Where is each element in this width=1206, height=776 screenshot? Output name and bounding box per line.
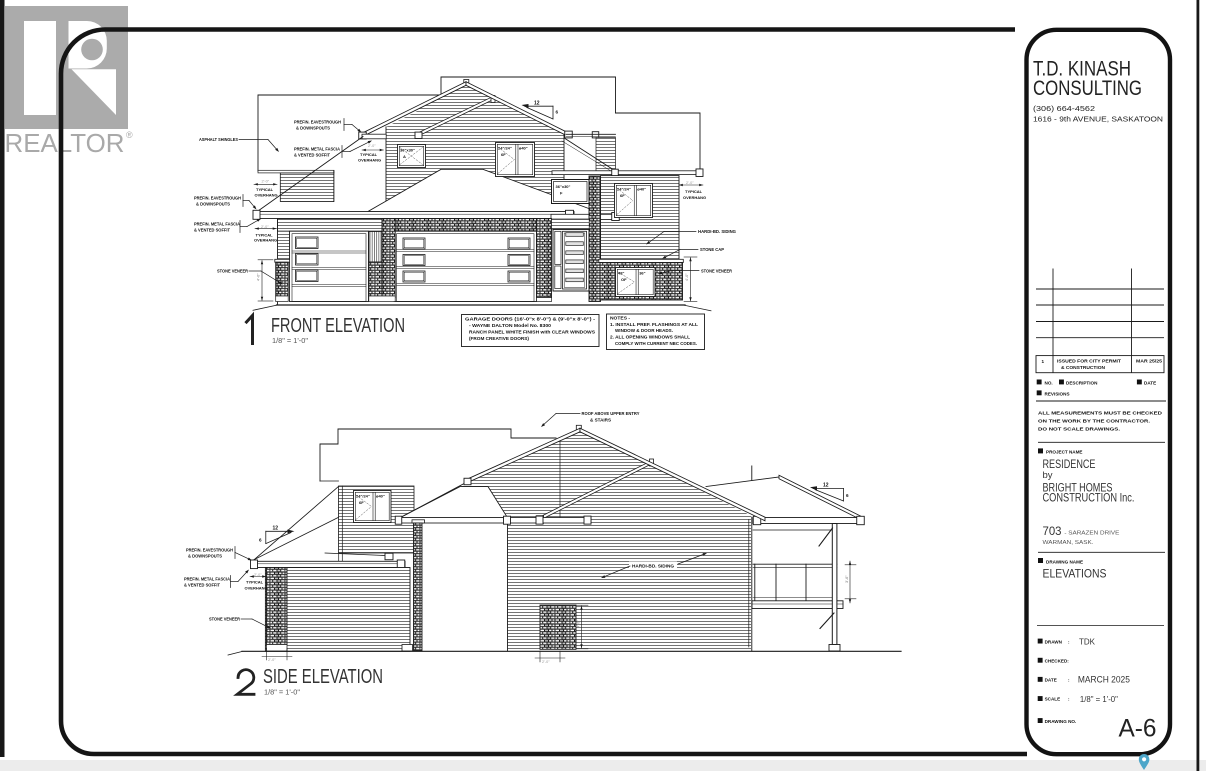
svg-text:A: A	[403, 154, 406, 159]
svg-text:& DOWNSPOUTS: & DOWNSPOUTS	[296, 126, 330, 131]
svg-text:PREFIN. EAVESTROUGH: PREFIN. EAVESTROUGH	[294, 120, 341, 125]
svg-text:STONE VENEER: STONE VENEER	[701, 269, 732, 274]
svg-text:2'-0": 2'-0"	[262, 180, 270, 184]
svg-text:MAR 25/25: MAR 25/25	[1136, 359, 1163, 364]
svg-text:PROJECT NAME: PROJECT NAME	[1046, 450, 1083, 455]
svg-text:PREFIN. METAL FASCIA: PREFIN. METAL FASCIA	[194, 222, 240, 227]
svg-text:& VENTED SOFFIT: & VENTED SOFFIT	[184, 583, 220, 588]
svg-text:TYPICAL: TYPICAL	[246, 579, 264, 584]
svg-text:ø40": ø40"	[637, 187, 646, 192]
svg-text:6F: 6F	[501, 152, 506, 157]
svg-text:ALL MEASUREMENTS MUST BE CHECK: ALL MEASUREMENTS MUST BE CHECKED	[1038, 411, 1163, 416]
svg-text:2'-0": 2'-0"	[542, 660, 550, 664]
svg-text:NO.: NO.	[1045, 381, 1053, 386]
svg-text:CONSULTING: CONSULTING	[1033, 77, 1142, 100]
svg-text:4'-0": 4'-0"	[257, 273, 261, 281]
svg-text:- WAYNE DALTON Model No. 8300: - WAYNE DALTON Model No. 8300	[469, 323, 552, 328]
svg-text:2'-0": 2'-0"	[368, 144, 376, 148]
svg-text:1/8" = 1'-0": 1/8" = 1'-0"	[1080, 695, 1118, 704]
svg-text:OVERHANG: OVERHANG	[683, 195, 706, 200]
svg-text:1: 1	[1042, 359, 1045, 364]
svg-text:6: 6	[846, 493, 849, 498]
svg-text:STONE VENEER: STONE VENEER	[209, 617, 240, 622]
svg-text:A-6: A-6	[1119, 715, 1157, 743]
svg-text:& VENTED SOFFIT: & VENTED SOFFIT	[194, 228, 230, 233]
svg-text:TYPICAL: TYPICAL	[256, 187, 274, 192]
svg-text:2. ALL OPENING WINDOWS SHALL: 2. ALL OPENING WINDOWS SHALL	[610, 335, 691, 340]
svg-text:4'-0": 4'-0"	[685, 273, 689, 281]
svg-text:PREFIN. METAL FASCIA: PREFIN. METAL FASCIA	[294, 147, 340, 152]
svg-text:12: 12	[823, 483, 829, 489]
svg-text:TDK: TDK	[1079, 638, 1096, 647]
svg-text:COMPLY WITH CURRENT NBC CODES.: COMPLY WITH CURRENT NBC CODES.	[615, 341, 697, 346]
svg-text:24"/24": 24"/24"	[498, 146, 512, 151]
svg-text:48": 48"	[618, 271, 624, 276]
svg-text:& CONSTRUCTION: & CONSTRUCTION	[1061, 365, 1105, 370]
svg-text:OVERHANG: OVERHANG	[245, 586, 268, 591]
svg-text:ø40": ø40"	[376, 494, 385, 499]
svg-text:2'-0": 2'-0"	[686, 181, 694, 185]
svg-text:PREFIN. EAVESTROUGH: PREFIN. EAVESTROUGH	[194, 196, 241, 201]
svg-text:HARDI-BD. SIDING: HARDI-BD. SIDING	[698, 229, 736, 234]
svg-text:DRAWING NO.: DRAWING NO.	[1045, 719, 1077, 724]
svg-text:®: ®	[126, 130, 133, 140]
svg-text:6: 6	[259, 538, 262, 543]
svg-text:703: 703	[1043, 524, 1062, 538]
svg-text:REVISIONS: REVISIONS	[1045, 392, 1070, 397]
svg-text:MARCH 2025: MARCH 2025	[1078, 675, 1130, 685]
svg-text:- SARAZEN DRIVE: - SARAZEN DRIVE	[1064, 531, 1119, 537]
svg-text:WARMAN, SASK.: WARMAN, SASK.	[1043, 540, 1095, 546]
svg-text:RANCH PANEL WHITE FINISH with: RANCH PANEL WHITE FINISH with CLEAR WIND…	[469, 330, 595, 335]
svg-text:CHECKED:: CHECKED:	[1045, 659, 1070, 664]
svg-text:TYPICAL: TYPICAL	[685, 189, 703, 194]
svg-text:DATE: DATE	[1144, 381, 1156, 386]
svg-text:3'-6": 3'-6"	[845, 575, 849, 583]
svg-text:6F: 6F	[359, 500, 364, 505]
svg-text:OVERHANG: OVERHANG	[254, 238, 277, 243]
svg-text:24"/24": 24"/24"	[617, 187, 631, 192]
svg-text:ø40": ø40"	[519, 146, 528, 151]
svg-text:12: 12	[273, 526, 279, 532]
svg-text:DRAWING NAME: DRAWING NAME	[1046, 560, 1083, 565]
svg-text:ASPHALT SHINGLES: ASPHALT SHINGLES	[199, 137, 238, 142]
svg-text:36"x30": 36"x30"	[400, 148, 415, 153]
svg-text:36"x30": 36"x30"	[556, 184, 571, 189]
svg-text:& DOWNSPOUTS: & DOWNSPOUTS	[188, 554, 222, 559]
svg-text:FRONT ELEVATION: FRONT ELEVATION	[271, 315, 405, 337]
svg-text:1/8" = 1'-0": 1/8" = 1'-0"	[264, 688, 300, 697]
svg-text:& DOWNSPOUTS: & DOWNSPOUTS	[196, 202, 230, 207]
svg-text:& VENTED SOFFIT: & VENTED SOFFIT	[294, 153, 330, 158]
svg-text:OVERHANG: OVERHANG	[358, 157, 381, 162]
svg-text:SCALE: SCALE	[1045, 697, 1061, 702]
svg-text:1616 - 9th AVENUE, SASKATOON: 1616 - 9th AVENUE, SASKATOON	[1033, 117, 1163, 124]
svg-text:(FROM CREATIVE DOORS): (FROM CREATIVE DOORS)	[469, 336, 530, 341]
svg-text:PREFIN. METAL FASCIA: PREFIN. METAL FASCIA	[184, 577, 230, 582]
svg-text:DESCRIPTION: DESCRIPTION	[1066, 381, 1098, 386]
svg-text:(306) 664-4562: (306) 664-4562	[1033, 104, 1095, 113]
svg-text:DATE: DATE	[1045, 678, 1057, 683]
svg-text:36": 36"	[639, 271, 645, 276]
svg-text:STONE CAP: STONE CAP	[700, 247, 724, 252]
svg-text:GARAGE DOORS (16'-0"x 8'-0") &: GARAGE DOORS (16'-0"x 8'-0") & (9'-0"x 8…	[465, 317, 596, 322]
svg-text:STONE VENEER: STONE VENEER	[217, 269, 248, 274]
svg-text:OF: OF	[621, 277, 627, 282]
svg-text:by: by	[1043, 470, 1053, 481]
svg-text:WINDOW & DOOR HEADS.: WINDOW & DOOR HEADS.	[615, 328, 673, 333]
svg-text:PREFIN. EAVESTROUGH: PREFIN. EAVESTROUGH	[186, 548, 233, 553]
svg-text:REALTOR: REALTOR	[5, 128, 125, 158]
svg-text:TYPICAL: TYPICAL	[360, 152, 378, 157]
svg-text:OVERHANG: OVERHANG	[255, 193, 278, 198]
svg-text:1/8" = 1'-0": 1/8" = 1'-0"	[272, 336, 308, 345]
svg-text:ROOF ABOVE UPPER ENTRY: ROOF ABOVE UPPER ENTRY	[582, 411, 640, 416]
svg-text:4'-0": 4'-0"	[577, 620, 581, 628]
svg-text:& STAIRS: & STAIRS	[590, 418, 611, 423]
svg-text:HARDI-BD. SIDING: HARDI-BD. SIDING	[632, 564, 674, 569]
svg-text:1. INSTALL PREF. FLASHINGS AT: 1. INSTALL PREF. FLASHINGS AT ALL	[610, 322, 699, 327]
svg-text:ELEVATIONS: ELEVATIONS	[1043, 569, 1107, 581]
svg-text:24"/24": 24"/24"	[356, 494, 370, 499]
svg-text:6: 6	[556, 110, 559, 115]
svg-text:DRAWN: DRAWN	[1045, 640, 1063, 645]
svg-text:ON THE WORK BY THE CONTRACTOR.: ON THE WORK BY THE CONTRACTOR.	[1038, 419, 1150, 424]
svg-text:2'-0": 2'-0"	[268, 658, 276, 662]
svg-text:2'-0": 2'-0"	[254, 573, 262, 577]
svg-text:6F: 6F	[620, 193, 625, 198]
svg-text:NOTES -: NOTES -	[610, 316, 631, 321]
svg-text:CONSTRUCTION Inc.: CONSTRUCTION Inc.	[1043, 493, 1135, 505]
svg-text:2'-0": 2'-0"	[261, 225, 269, 229]
svg-text:SIDE ELEVATION: SIDE ELEVATION	[263, 666, 383, 688]
svg-text:DO NOT SCALE DRAWINGS.: DO NOT SCALE DRAWINGS.	[1038, 427, 1120, 432]
svg-text:ISSUED FOR CITY PERMIT: ISSUED FOR CITY PERMIT	[1057, 359, 1121, 364]
svg-text:12: 12	[534, 101, 540, 107]
